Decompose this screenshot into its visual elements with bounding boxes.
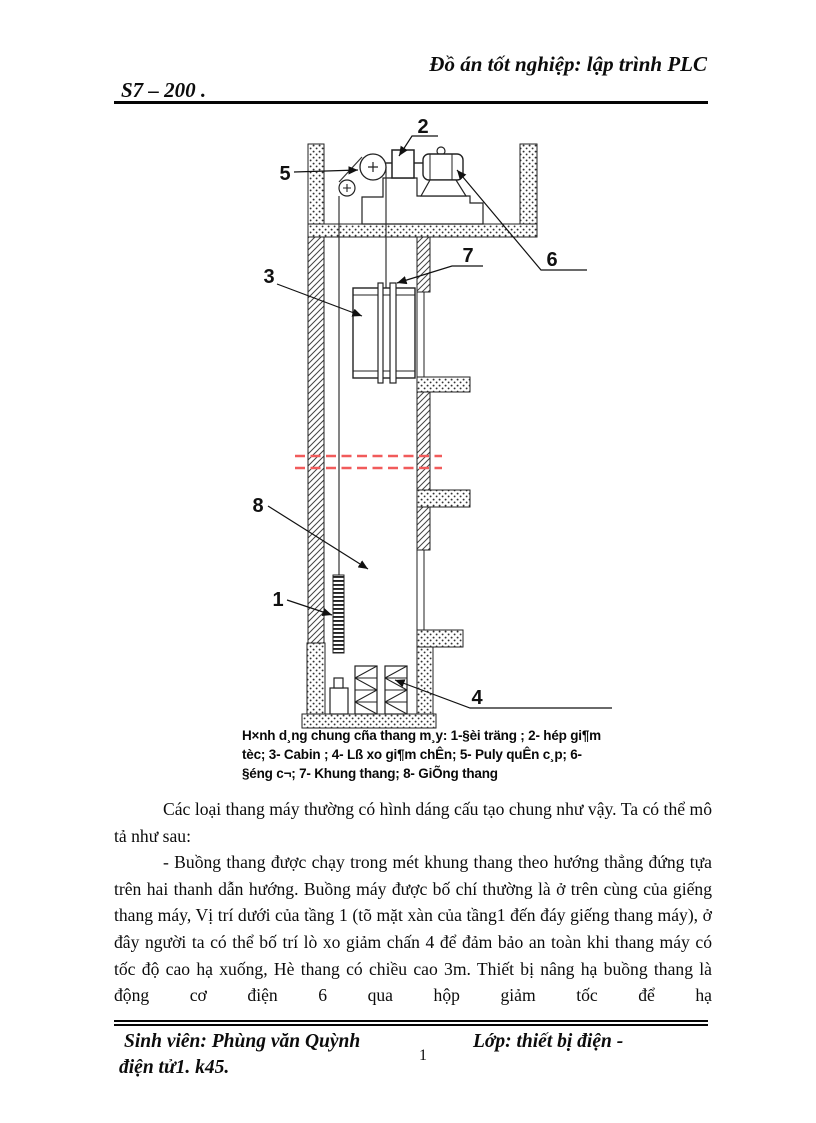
machine-base [362,178,483,224]
pit-equipment [330,666,407,714]
paragraph-description: - Buồng thang được chạy trong mét khung … [114,849,712,1009]
header-subtitle: S7 – 200 . [121,78,206,103]
figure-caption-line: tèc; 3- Cabin ; 4- Lß xo gi¶m chÊn; 5- P… [242,745,601,764]
landing-door-upper [417,292,424,377]
figure-label-2: 2 [417,116,428,138]
figure-caption: H×nh d¸ng chung cña thang m¸y: 1-§èi trä… [242,726,601,783]
buffer-post [330,688,348,714]
figure-label-6: 6 [546,249,557,271]
figure-label-8: 8 [252,495,263,517]
footer-class-line1: Lớp: thiết bị điện - [473,1030,623,1053]
floor-slab [417,630,463,647]
gearbox [392,150,414,178]
footer-class-line2: điện tử1. k45. [119,1056,229,1079]
document-page: Đồ án tốt nghiệp: lập trình PLC S7 – 200… [0,0,816,1123]
figure-label-5: 5 [279,163,290,185]
motor [421,147,466,196]
figure-caption-line: §éng c¬; 7- Khung thang; 8- GiÕng thang [242,764,601,783]
paragraph-intro: Các loại thang máy thường có hình dáng c… [114,796,712,849]
footer-student: Sinh viên: Phùng văn Quỳnh [124,1030,360,1053]
page-number: 1 [419,1047,427,1065]
figure-caption-line: H×nh d¸ng chung cña thang m¸y: 1-§èi trä… [242,726,601,745]
figure-label-4: 4 [471,687,483,709]
elevator-diagram: 2 5 6 7 3 8 1 4 [250,110,620,740]
floor-slab [417,490,470,507]
floor-slab [417,377,470,392]
figure-label-1: 1 [272,589,283,611]
figure-label-3: 3 [263,266,274,288]
header-title: Đồ án tốt nghiệp: lập trình PLC [115,51,707,77]
shock-springs [355,666,407,714]
header-rule [114,101,708,104]
figure-label-7: 7 [462,245,473,267]
landing-door-lower [417,550,424,630]
cabin-frame-bar [378,283,383,383]
body-text: Các loại thang máy thường có hình dáng c… [114,796,712,1009]
cabin [353,283,415,383]
cabin-frame-bar [390,283,396,383]
footer-rule [114,1020,708,1026]
counterweight [333,575,344,653]
